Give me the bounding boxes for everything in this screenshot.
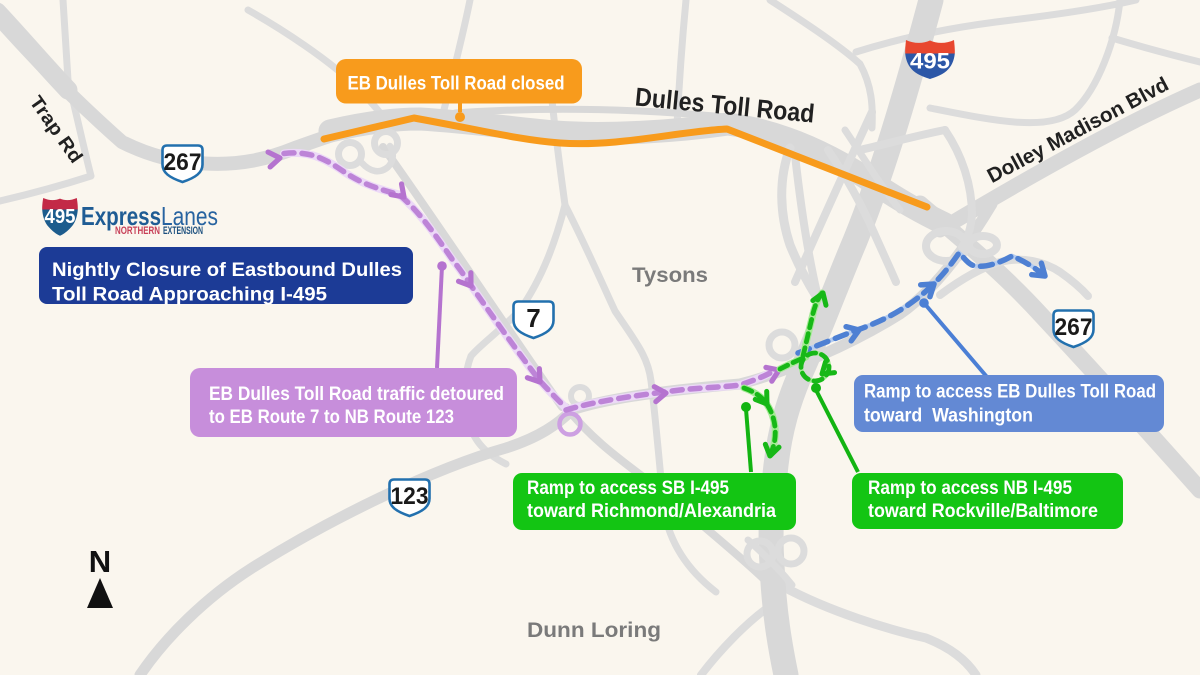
svg-text:EB Dulles Toll Road closed: EB Dulles Toll Road closed — [348, 73, 565, 95]
svg-text:Ramp to access NB I-495: Ramp to access NB I-495 — [868, 477, 1072, 499]
svg-text:Dunn Loring: Dunn Loring — [527, 618, 661, 642]
svg-text:123: 123 — [391, 483, 429, 510]
svg-text:267: 267 — [1055, 314, 1093, 341]
svg-text:EB Dulles Toll Road traffic de: EB Dulles Toll Road traffic detoured — [209, 383, 504, 405]
svg-text:toward Rockville/Baltimore: toward Rockville/Baltimore — [868, 500, 1098, 522]
svg-text:7: 7 — [526, 303, 540, 333]
svg-text:EXTENSION: EXTENSION — [163, 225, 203, 237]
svg-text:NORTHERN: NORTHERN — [115, 225, 160, 237]
svg-text:267: 267 — [164, 149, 202, 176]
svg-text:Ramp to access EB Dulles Toll: Ramp to access EB Dulles Toll Road — [864, 381, 1156, 403]
svg-text:toward Richmond/Alexandria: toward Richmond/Alexandria — [527, 500, 776, 522]
svg-text:Ramp to access SB I-495: Ramp to access SB I-495 — [527, 477, 729, 499]
svg-text:Toll Road Approaching I-495: Toll Road Approaching I-495 — [52, 284, 327, 306]
svg-text:to EB Route 7 to NB Route 123: to EB Route 7 to NB Route 123 — [209, 406, 454, 428]
svg-text:N: N — [89, 544, 111, 579]
svg-text:495: 495 — [910, 49, 950, 74]
svg-text:Tysons: Tysons — [632, 263, 708, 287]
svg-text:495: 495 — [45, 206, 76, 228]
svg-text:Nightly Closure of Eastbound D: Nightly Closure of Eastbound Dulles — [52, 259, 402, 281]
svg-text:toward Washington: toward Washington — [864, 405, 1033, 427]
